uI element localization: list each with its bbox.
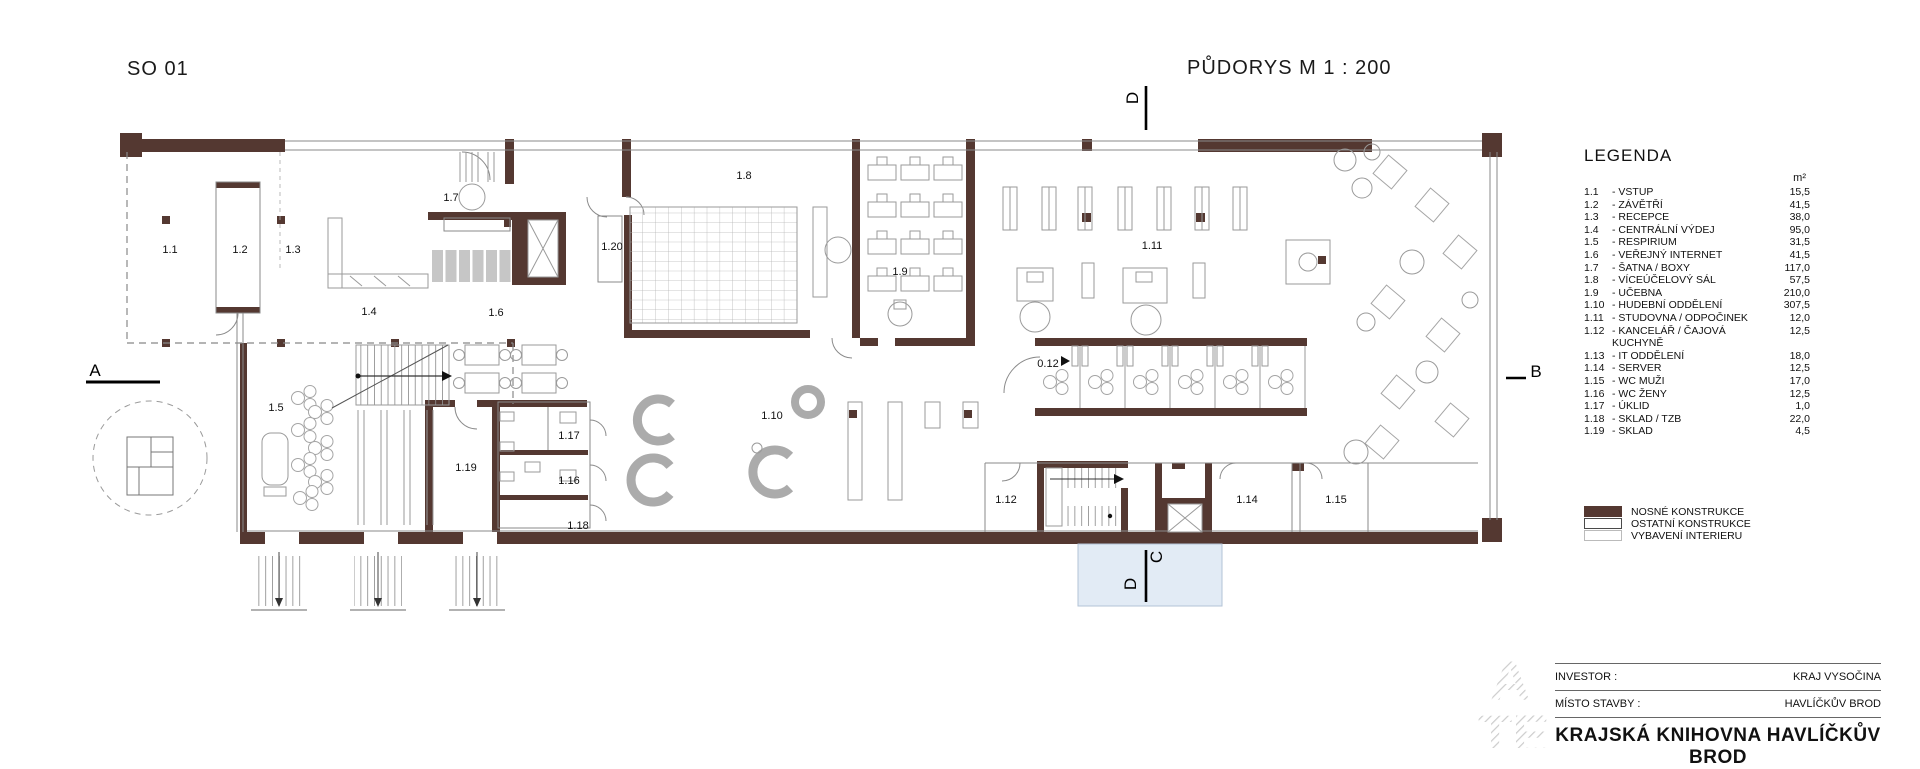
- legend-room-area: 22,0: [1772, 413, 1810, 426]
- room-label-1.20: 1.20: [601, 241, 622, 253]
- room-label-1.17: 1.17: [558, 430, 579, 442]
- section-marker-c: C: [1147, 551, 1167, 563]
- room-label-1.2: 1.2: [232, 244, 247, 256]
- construction-label: OSTATNÍ KONSTRUKCE: [1631, 518, 1751, 530]
- legend-row-1.2: 1.2- ZÁVĚTŘÍ41,5: [1584, 199, 1810, 212]
- plan-title: PŮDORYS M 1 : 200: [1187, 57, 1391, 80]
- legend-room-id: 1.9: [1584, 287, 1612, 300]
- legend-room-area: 57,5: [1772, 274, 1810, 287]
- legend-room-name: - CENTRÁLNÍ VÝDEJ: [1612, 224, 1772, 237]
- construction-label: NOSNÉ KONSTRUKCE: [1631, 506, 1744, 518]
- legend-room-id: 1.16: [1584, 388, 1612, 401]
- legend-room-id: 1.17: [1584, 400, 1612, 413]
- legend-row-1.13: 1.13- IT ODDĚLENÍ18,0: [1584, 350, 1810, 363]
- title-block: INVESTOR : KRAJ VYSOČINA MÍSTO STAVBY : …: [1555, 663, 1881, 769]
- section-marker-b: B: [1530, 362, 1541, 382]
- legend-room-name: - UČEBNA: [1612, 287, 1772, 300]
- legend-room-id: 1.1: [1584, 186, 1612, 199]
- room-label-1.6: 1.6: [488, 307, 503, 319]
- investor-row: INVESTOR : KRAJ VYSOČINA: [1555, 663, 1881, 690]
- construction-label: VYBAVENÍ INTERIERU: [1631, 530, 1742, 542]
- site-label: MÍSTO STAVBY :: [1555, 698, 1640, 710]
- hall-seating-grid: [630, 207, 797, 323]
- room-label-1.18: 1.18: [567, 520, 588, 532]
- legend-row-1.15: 1.15- WC MUŽI17,0: [1584, 375, 1810, 388]
- legend-room-area: 307,5: [1772, 299, 1810, 312]
- room-label-1.8: 1.8: [736, 170, 751, 182]
- legend-room-id: 1.13: [1584, 350, 1612, 363]
- legend-room-area: 210,0: [1772, 287, 1810, 300]
- legend-room-id: 1.19: [1584, 425, 1612, 438]
- legend-rows: 1.1- VSTUP15,51.2- ZÁVĚTŘÍ41,51.3- RECEP…: [1584, 186, 1810, 438]
- legend-row-1.11: 1.11- STUDOVNA / ODPOČINEK12,0: [1584, 312, 1810, 325]
- core-staircase: [1046, 468, 1124, 526]
- section-marker-lines: [86, 86, 1526, 602]
- investor-label: INVESTOR :: [1555, 671, 1617, 683]
- room-label-1.1: 1.1: [162, 244, 177, 256]
- room-label-1.11: 1.11: [1142, 240, 1163, 252]
- legend-row-1.5: 1.5- RESPIRIUM31,5: [1584, 236, 1810, 249]
- legend-room-name: - SERVER: [1612, 362, 1772, 375]
- legend-room-area: 12,5: [1772, 362, 1810, 375]
- legend-row-1.9: 1.9- UČEBNA210,0: [1584, 287, 1810, 300]
- legend-room-name: - VSTUP: [1612, 186, 1772, 199]
- carrel-arrow: [1061, 356, 1070, 366]
- legend-room-name: - SKLAD / TZB: [1612, 413, 1772, 426]
- legend-row-1.7: 1.7- ŠATNA / BOXY117,0: [1584, 262, 1810, 275]
- legend-room-id: 1.4: [1584, 224, 1612, 237]
- section-marker-d-bottom: D: [1121, 578, 1141, 590]
- construction-legend: NOSNÉ KONSTRUKCEOSTATNÍ KONSTRUKCEVYBAVE…: [1584, 506, 1751, 542]
- investor-value: KRAJ VYSOČINA: [1793, 671, 1881, 683]
- legend-row-1.8: 1.8- VÍCEÚČELOVÝ SÁL57,5: [1584, 274, 1810, 287]
- room-label-1.12: 1.12: [995, 494, 1016, 506]
- room-label-1.10: 1.10: [761, 410, 782, 422]
- legend-room-name: - ŠATNA / BOXY: [1612, 262, 1772, 275]
- legend-room-area: 17,0: [1772, 375, 1810, 388]
- logo-letter-bottom: TE: [1478, 703, 1550, 748]
- legend-row-1.18: 1.18- SKLAD / TZB22,0: [1584, 413, 1810, 426]
- room-label-0.12: 0.12: [1037, 358, 1058, 370]
- legend-room-area: 38,0: [1772, 211, 1810, 224]
- legend-row-1.14: 1.14- SERVER12,5: [1584, 362, 1810, 375]
- construction-swatch-solid: [1584, 506, 1622, 517]
- legend-room-area: 15,5: [1772, 186, 1810, 199]
- construction-swatch-outline-light: [1584, 530, 1622, 541]
- legend-room-name: - RECEPCE: [1612, 211, 1772, 224]
- legend-room-name: - STUDOVNA / ODPOČINEK: [1612, 312, 1772, 325]
- legend-row-1.16: 1.16- WC ŽENY12,5: [1584, 388, 1810, 401]
- legend-room-name: - KANCELÁŘ / ČAJOVÁ KUCHYNĚ: [1612, 325, 1772, 350]
- legend-room-area: 12,0: [1772, 312, 1810, 325]
- legend-room-name: - ZÁVĚTŘÍ: [1612, 199, 1772, 212]
- room-label-1.14: 1.14: [1236, 494, 1257, 506]
- legend-room-name: - WC ŽENY: [1612, 388, 1772, 401]
- legend-room-id: 1.8: [1584, 274, 1612, 287]
- construction-swatch-outline-dark: [1584, 518, 1622, 529]
- legend-room-id: 1.2: [1584, 199, 1612, 212]
- legend-room-area: 4,5: [1772, 425, 1810, 438]
- legend-room-id: 1.18: [1584, 413, 1612, 426]
- legend-room-id: 1.15: [1584, 375, 1612, 388]
- legend-room-area: 18,0: [1772, 350, 1810, 363]
- legend-room-name: - ÚKLID: [1612, 400, 1772, 413]
- legend-room-id: 1.6: [1584, 249, 1612, 262]
- legend-room-name: - HUDEBNÍ ODDĚLENÍ: [1612, 299, 1772, 312]
- site-value: HAVLÍČKŮV BROD: [1785, 698, 1881, 710]
- legend-row-1.6: 1.6- VEŘEJNÝ INTERNET41,5: [1584, 249, 1810, 262]
- site-row: MÍSTO STAVBY : HAVLÍČKŮV BROD: [1555, 690, 1881, 717]
- legend-room-area: 117,0: [1772, 262, 1810, 275]
- legend-room-id: 1.14: [1584, 362, 1612, 375]
- legend-row-1.19: 1.19- SKLAD4,5: [1584, 425, 1810, 438]
- legend-room-area: 95,0: [1772, 224, 1810, 237]
- room-label-1.7: 1.7: [443, 192, 458, 204]
- legend: LEGENDA m² 1.1- VSTUP15,51.2- ZÁVĚTŘÍ41,…: [1584, 146, 1810, 438]
- legend-room-area: 41,5: [1772, 199, 1810, 212]
- legend-row-1.1: 1.1- VSTUP15,5: [1584, 186, 1810, 199]
- room-label-1.19: 1.19: [455, 462, 476, 474]
- legend-row-1.17: 1.17- ÚKLID1,0: [1584, 400, 1810, 413]
- legend-row-1.4: 1.4- CENTRÁLNÍ VÝDEJ95,0: [1584, 224, 1810, 237]
- legend-room-area: 1,0: [1772, 400, 1810, 413]
- legend-room-name: - WC MUŽI: [1612, 375, 1772, 388]
- legend-room-id: 1.12: [1584, 325, 1612, 350]
- structure-label: SO 01: [127, 58, 189, 81]
- floor-plan-sheet: { "drawing": { "structure_label": "SO 01…: [0, 0, 1920, 748]
- room-label-1.15: 1.15: [1325, 494, 1346, 506]
- legend-room-area: 41,5: [1772, 249, 1810, 262]
- room-label-1.4: 1.4: [361, 306, 376, 318]
- legend-row-1.10: 1.10- HUDEBNÍ ODDĚLENÍ307,5: [1584, 299, 1810, 312]
- legend-room-name: - RESPIRIUM: [1612, 236, 1772, 249]
- construction-row: NOSNÉ KONSTRUKCE: [1584, 506, 1751, 518]
- exterior-stairs: [251, 552, 505, 610]
- legend-room-name: - IT ODDĚLENÍ: [1612, 350, 1772, 363]
- construction-row: VYBAVENÍ INTERIERU: [1584, 530, 1751, 542]
- legend-room-id: 1.11: [1584, 312, 1612, 325]
- legend-room-id: 1.5: [1584, 236, 1612, 249]
- detail-circle: [93, 401, 207, 515]
- legend-row-1.12: 1.12- KANCELÁŘ / ČAJOVÁ KUCHYNĚ12,5: [1584, 325, 1810, 350]
- room-label-1.3: 1.3: [285, 244, 300, 256]
- legend-room-id: 1.10: [1584, 299, 1612, 312]
- legend-room-id: 1.7: [1584, 262, 1612, 275]
- room-label-1.16: 1.16: [558, 475, 579, 487]
- main-staircase: [332, 345, 452, 525]
- section-marker-d-top: D: [1123, 92, 1143, 104]
- locker-boxes: [432, 250, 511, 282]
- legend-room-area: 12,5: [1772, 388, 1810, 401]
- legend-row-1.3: 1.3- RECEPCE38,0: [1584, 211, 1810, 224]
- construction-row: OSTATNÍ KONSTRUKCE: [1584, 518, 1751, 530]
- legend-title: LEGENDA: [1584, 146, 1810, 166]
- room-label-1.5: 1.5: [268, 402, 283, 414]
- section-marker-a: A: [89, 361, 100, 381]
- legend-room-area: 31,5: [1772, 236, 1810, 249]
- legend-room-name: - VÍCEÚČELOVÝ SÁL: [1612, 274, 1772, 287]
- room-label-1.9: 1.9: [892, 266, 907, 278]
- legend-room-area: 12,5: [1772, 325, 1810, 350]
- legend-unit: m²: [1584, 172, 1810, 184]
- legend-room-id: 1.3: [1584, 211, 1612, 224]
- project-title: KRAJSKÁ KNIHOVNA HAVLÍČKŮV BROD: [1555, 717, 1881, 769]
- legend-room-name: - VEŘEJNÝ INTERNET: [1612, 249, 1772, 262]
- legend-room-name: - SKLAD: [1612, 425, 1772, 438]
- studio-logo: A TE: [1478, 649, 1550, 748]
